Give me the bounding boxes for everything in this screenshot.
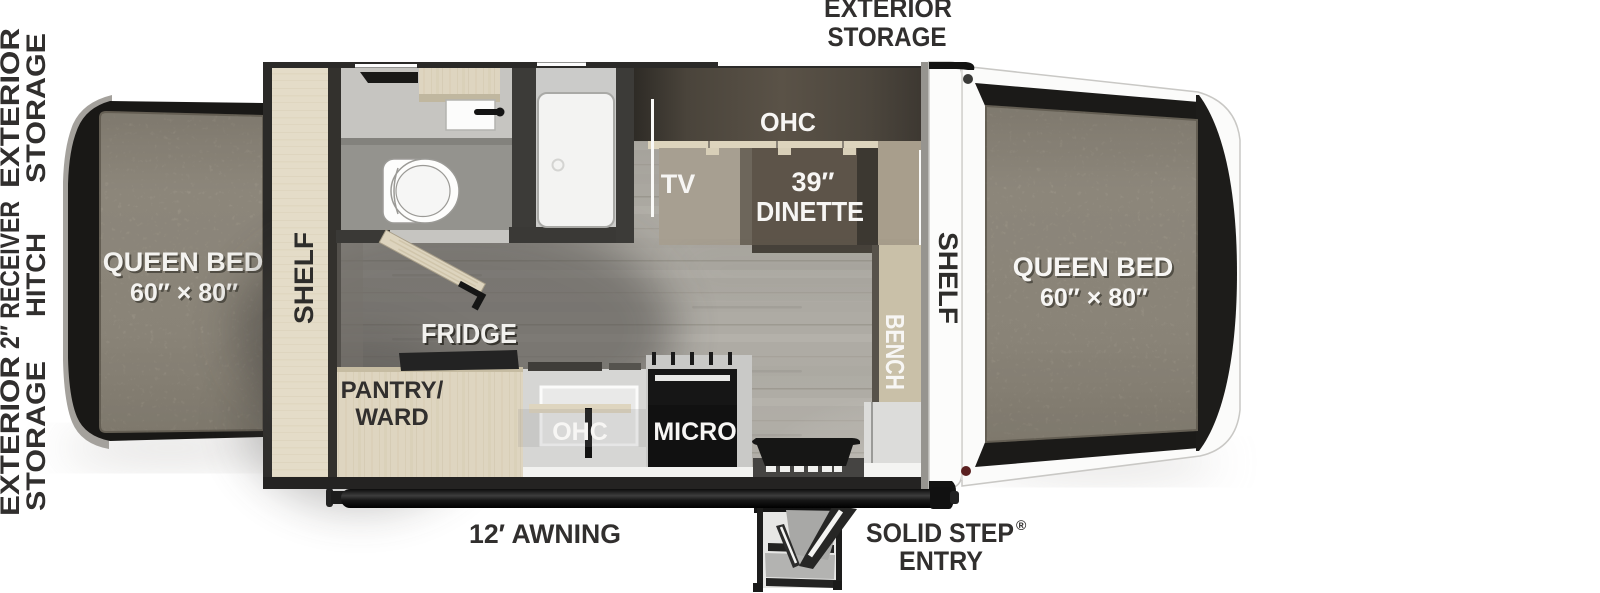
svg-text:DINETTE: DINETTE xyxy=(756,196,864,227)
svg-text:39″: 39″ xyxy=(792,167,835,197)
svg-text:60″ × 80″: 60″ × 80″ xyxy=(130,279,238,307)
svg-text:TV: TV xyxy=(661,169,696,199)
svg-text:EXTERIOR: EXTERIOR xyxy=(824,0,952,23)
svg-text:STORAGE: STORAGE xyxy=(21,361,51,511)
svg-text:ENTRY: ENTRY xyxy=(899,546,983,576)
svg-text:12′ AWNING: 12′ AWNING xyxy=(469,519,621,549)
svg-text:OHC: OHC xyxy=(552,418,608,446)
svg-text:MICRO: MICRO xyxy=(653,418,736,446)
svg-text:OHC: OHC xyxy=(760,107,816,137)
svg-text:PANTRY/: PANTRY/ xyxy=(341,377,444,404)
svg-text:BENCH: BENCH xyxy=(880,314,910,390)
svg-text:SOLID STEP: SOLID STEP xyxy=(866,518,1014,548)
svg-text:STORAGE: STORAGE xyxy=(21,33,51,183)
svg-text:SHELF: SHELF xyxy=(933,232,963,324)
svg-text:®: ® xyxy=(1016,517,1027,533)
svg-text:QUEEN BED: QUEEN BED xyxy=(1013,252,1174,282)
svg-text:SHELF: SHELF xyxy=(289,232,319,324)
svg-text:FRIDGE: FRIDGE xyxy=(421,318,517,349)
svg-text:60″ × 80″: 60″ × 80″ xyxy=(1040,284,1148,312)
svg-text:HITCH: HITCH xyxy=(21,233,51,317)
svg-text:STORAGE: STORAGE xyxy=(828,22,947,52)
svg-text:QUEEN BED: QUEEN BED xyxy=(103,247,264,277)
svg-text:WARD: WARD xyxy=(355,404,428,431)
